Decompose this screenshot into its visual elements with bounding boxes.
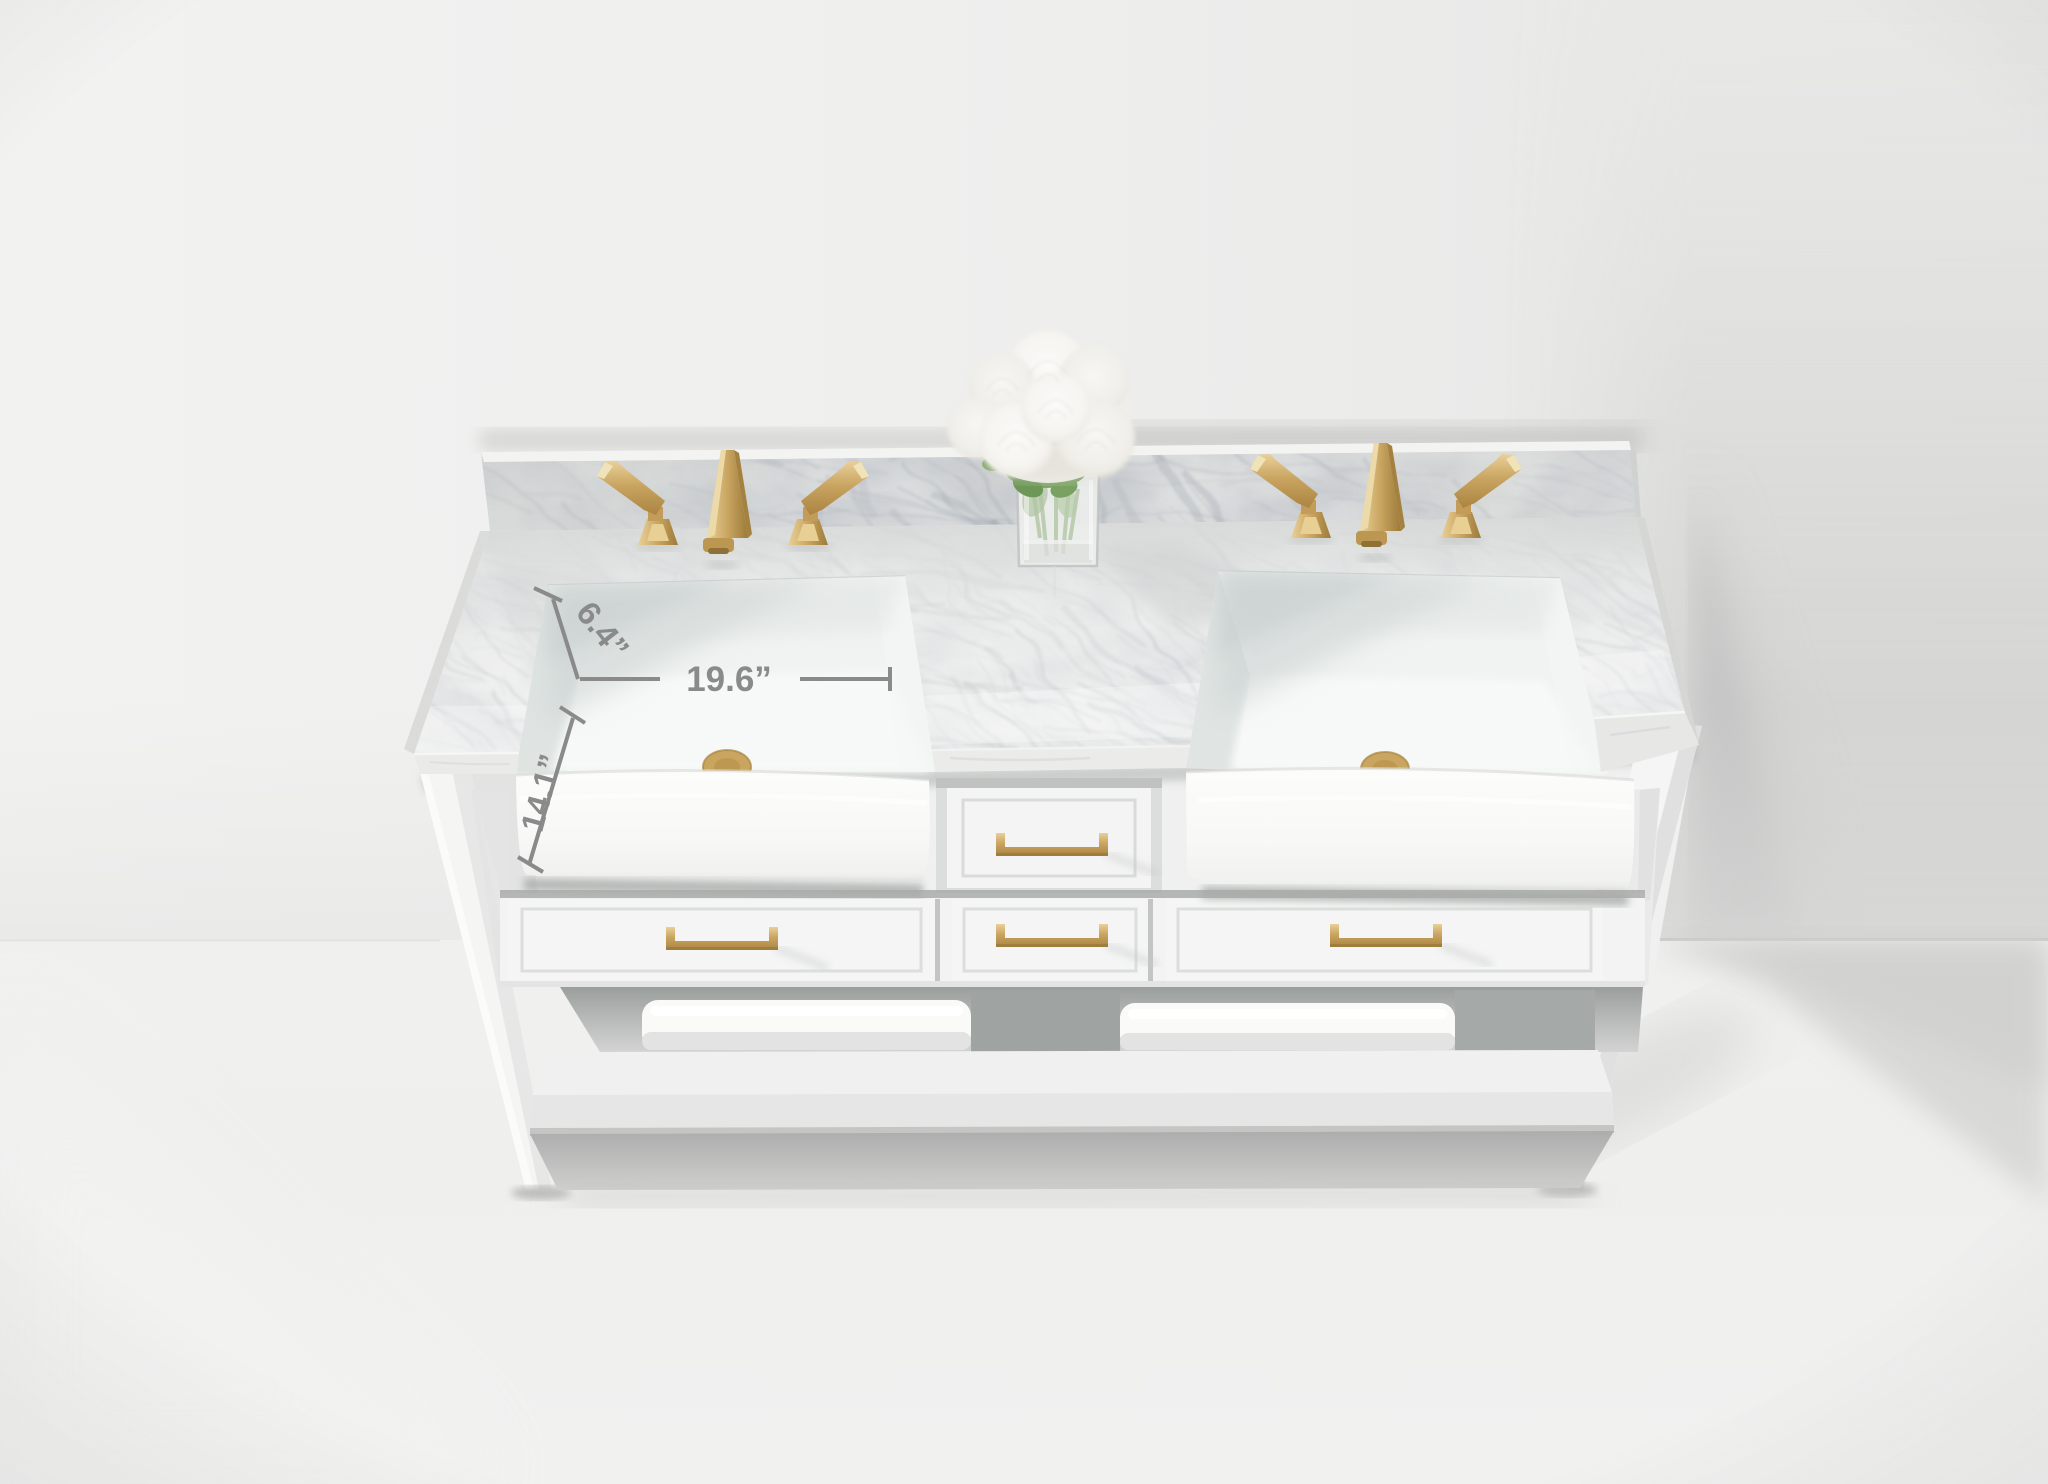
svg-text:19.6”: 19.6” (686, 660, 772, 699)
